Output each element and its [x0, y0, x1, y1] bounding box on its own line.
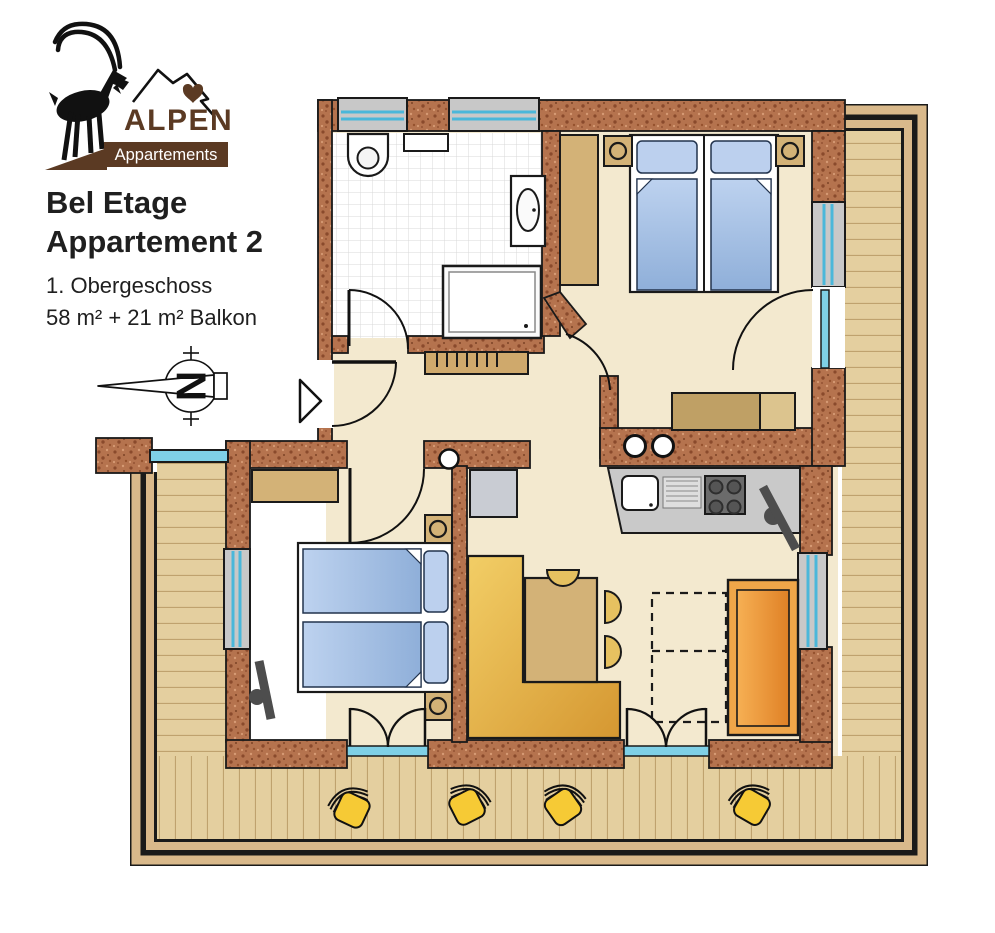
- pillow: [637, 141, 697, 173]
- wall-bedroom2-west-upper: [226, 441, 250, 553]
- wall-east-4: [800, 647, 832, 742]
- pillow: [424, 551, 448, 612]
- sideboard: [672, 393, 760, 430]
- duvet: [637, 179, 697, 290]
- duvet: [303, 549, 421, 613]
- sofa: [728, 580, 798, 735]
- duvet: [711, 179, 771, 290]
- floorplan-page: ALPEN Appartements Bel Etage Appartement…: [0, 0, 995, 933]
- nightstand: [776, 136, 804, 166]
- entrance-opening: [316, 360, 334, 428]
- sideboard-end: [760, 393, 795, 430]
- nightstand: [604, 136, 632, 166]
- wardrobe-bedroom-bottom: [252, 470, 338, 502]
- balcony-parapet-glass: [150, 450, 228, 462]
- french-door-sill-bedroom: [347, 746, 428, 756]
- wardrobe-bedroom-top: [560, 135, 598, 285]
- duvet: [303, 622, 421, 687]
- balcony-floor-left: [157, 462, 227, 756]
- wall-south-3: [709, 740, 832, 768]
- wall-west-upper: [318, 100, 332, 362]
- shower: [443, 266, 541, 338]
- wall-east-1: [812, 131, 845, 202]
- bathroom-shelf: [404, 134, 448, 151]
- wall-south-1: [226, 740, 347, 768]
- hall-cabinet: [470, 470, 517, 517]
- wall-bedroom2-west-lower: [226, 647, 250, 742]
- column-circle: [653, 436, 674, 457]
- wall-bedroom2-east: [452, 466, 467, 742]
- window-north-2: [449, 98, 539, 131]
- window-east-living: [798, 553, 827, 649]
- cooktop: [705, 476, 745, 514]
- wall-east-3: [800, 466, 832, 555]
- tv-bedroom: [259, 661, 271, 719]
- column-circle: [440, 450, 459, 469]
- french-door-sill-living: [624, 746, 709, 756]
- dining-table: [525, 578, 597, 682]
- kitchen-drainer: [663, 477, 701, 508]
- wall-balcony-stub: [96, 438, 152, 473]
- wall-east-2: [812, 368, 845, 466]
- pillow: [424, 622, 448, 683]
- window-west-bedroom: [224, 549, 250, 649]
- wall-south-2: [428, 740, 624, 768]
- washbasin: [511, 176, 545, 246]
- window-north-1: [338, 98, 407, 131]
- balcony-floor-right: [842, 131, 901, 756]
- window-east-bedroom: [812, 202, 845, 287]
- column-circle: [625, 436, 646, 457]
- pillow: [711, 141, 771, 173]
- floorplan-drawing: [0, 0, 995, 933]
- wall-bathroom-south-left: [332, 336, 348, 353]
- coat-hooks: [437, 352, 497, 367]
